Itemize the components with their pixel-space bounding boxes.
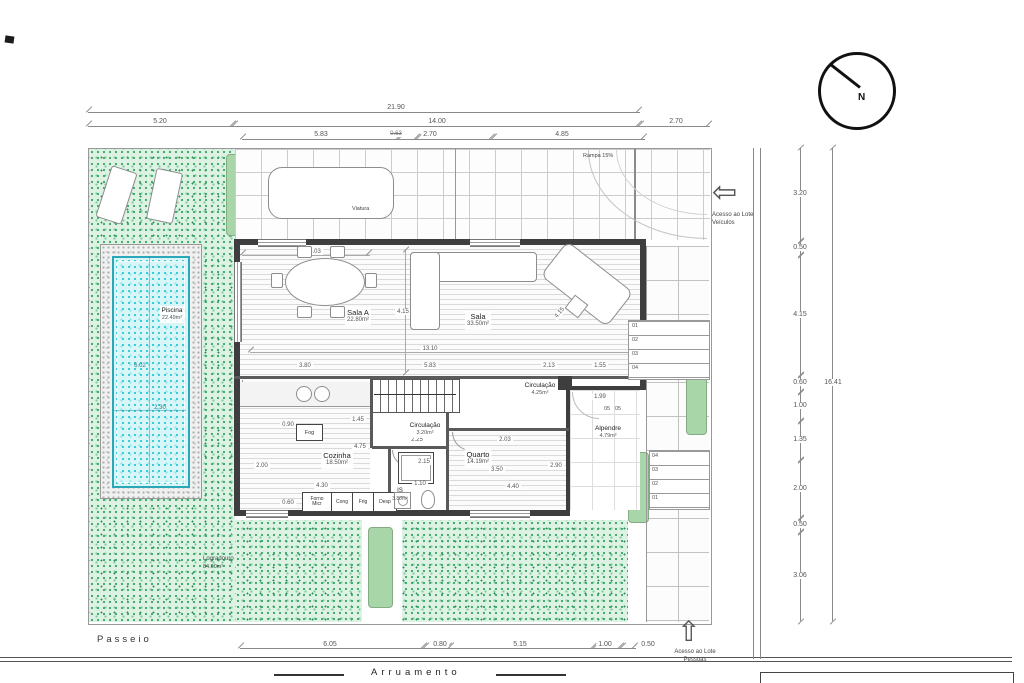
dim-r-050a: 0.50 — [791, 244, 809, 251]
dim-kitchen-090: 0.90 — [280, 422, 296, 428]
car-label: Viatura — [352, 206, 369, 213]
step-number: 01 — [652, 495, 658, 501]
room-name-cozinha: Cozinha — [323, 451, 351, 460]
car-outline — [268, 167, 394, 219]
dining-chair — [365, 273, 377, 288]
dim-line-b1 — [240, 648, 425, 649]
street-line — [0, 661, 1012, 662]
room-name-quarto: Quarto — [467, 450, 490, 459]
step-number: 04 — [652, 453, 658, 459]
pool-dim-length: 6.02 — [132, 363, 148, 369]
dim-line-b2 — [425, 648, 450, 649]
fridge-label: Frig — [359, 499, 368, 505]
window-top-sala — [470, 239, 520, 247]
street-line — [0, 657, 1012, 658]
compass-north-label: N — [858, 92, 865, 103]
dim-485: 4.85 — [553, 131, 571, 138]
dim-r-200: 2.00 — [791, 485, 809, 492]
dim-kitchen-475: 4.75 — [352, 444, 368, 450]
dim-line-270-top — [640, 126, 710, 127]
dim-line-485 — [493, 139, 645, 140]
logradouro-area: 84.00m² — [203, 564, 234, 571]
dim-shower: 2.15 — [416, 459, 432, 465]
window-kitchen — [246, 510, 288, 518]
access-people-label: Acesso ao Lote Pessoas — [664, 649, 726, 665]
dim-270b: 2.70 — [421, 131, 439, 138]
dim-r-060: 0.60 — [791, 379, 809, 386]
oven-box: Forno Micr — [302, 492, 332, 512]
ramp-label: Rampa 15% — [583, 153, 613, 160]
pool-axis-vertical — [149, 256, 150, 484]
room-label-piscina: Piscina 22.49m² — [160, 306, 185, 323]
room-area-sala-a: 22.80m² — [347, 317, 369, 325]
dim-r-135: 1.35 — [791, 436, 809, 443]
step-number: 01 — [632, 323, 638, 329]
partition-is-right — [446, 411, 449, 510]
room-name-circulacao-piso: Circulação — [410, 422, 441, 430]
dining-chair — [271, 273, 283, 288]
room-area-piscina: 22.49m² — [162, 315, 182, 322]
stove-label: Fog — [305, 430, 314, 436]
steps-lower — [649, 450, 710, 510]
dim-sala-a-h: 4.15 — [395, 309, 411, 315]
dim-line-583 — [242, 139, 400, 140]
window-quarto — [470, 510, 530, 518]
dim-270-top: 2.70 — [667, 118, 685, 125]
pool-axis-horizontal — [113, 410, 186, 411]
dim-b-100: 1.00 — [596, 641, 614, 648]
dim-seg-155: 1.55 — [592, 363, 608, 369]
dim-seg-380: 3.80 — [297, 363, 313, 369]
wall-pier — [558, 376, 572, 390]
dim-line-total-width — [88, 112, 640, 113]
wall-alpendre-top — [570, 386, 646, 390]
access-people-line2: Pessoas — [664, 657, 726, 665]
room-name-piscina: Piscina — [162, 307, 183, 315]
dim-b-050: 0.50 — [639, 641, 657, 648]
access-vehicles-line1: Acesso ao Lote — [712, 212, 753, 220]
access-people-arrow-icon: ⇧ — [677, 618, 700, 646]
step-number-landing: 05 — [604, 406, 610, 412]
sofa-chaise — [410, 252, 440, 330]
room-area-quarto: 14.19m² — [467, 459, 489, 467]
dining-chair — [330, 306, 345, 318]
dim-kitchen-060: 0.60 — [280, 500, 296, 506]
patio-edge-line — [646, 246, 647, 622]
dim-line-b4 — [595, 648, 622, 649]
dining-table — [285, 258, 365, 306]
step-number: 02 — [652, 481, 658, 487]
dim-line-living-total — [250, 352, 634, 353]
dim-r-415: 4.15 — [791, 311, 809, 318]
access-people-line1: Acesso ao Lote — [664, 649, 726, 657]
room-name-sala-a: Sala A — [347, 308, 369, 317]
step-number: 02 — [632, 337, 638, 343]
dim-quarto-440: 4.40 — [505, 484, 521, 490]
room-label-alpendre: Alpendre 4.79m² — [593, 424, 623, 441]
dining-chair — [297, 306, 312, 318]
wall-right-lower — [566, 390, 570, 516]
dim-520: 5.20 — [151, 118, 169, 125]
step-number: 03 — [652, 467, 658, 473]
dim-hall-b: 2.03 — [497, 437, 513, 443]
dim-kitchen-200: 2.00 — [254, 463, 270, 469]
access-vehicles-line2: Veículos — [712, 220, 753, 228]
window-left-pool — [234, 262, 242, 342]
room-label-is: IS 3.80m² — [390, 487, 410, 503]
room-area-cozinha: 18.50m² — [326, 460, 348, 468]
logradouro-name: Logradouro — [203, 556, 234, 564]
dim-is-w: 1.10 — [412, 481, 428, 487]
room-area-alpendre: 4.79m² — [599, 433, 616, 440]
street-dash — [274, 674, 344, 676]
room-label-sala-a: Sala A 22.80m² — [345, 307, 371, 326]
passeio-label: Passeio — [97, 634, 152, 645]
kitchen-sink — [296, 386, 312, 402]
dim-line-b5 — [622, 648, 636, 649]
microwave-label: Micr — [312, 502, 321, 507]
room-name-alpendre: Alpendre — [595, 425, 621, 433]
fridge-box: Frig — [352, 492, 374, 512]
dim-r-100: 1.00 — [791, 402, 809, 409]
freezer-label: Cong — [336, 499, 348, 505]
dining-chair — [297, 246, 312, 258]
dim-r-306: 3.06 — [791, 572, 809, 579]
dim-r-050b: 0.50 — [791, 521, 809, 528]
dim-r-320: 3.20 — [791, 190, 809, 197]
room-area-circulacao-sup: 4.25m² — [531, 390, 548, 397]
planter-garden — [368, 527, 393, 608]
sidewalk-line — [760, 148, 761, 659]
room-label-quarto: Quarto 14.19m² — [465, 449, 492, 468]
dining-chair — [330, 246, 345, 258]
partition-is-top — [372, 446, 449, 449]
room-name-is: IS — [397, 488, 403, 496]
room-area-sala: 33.50m² — [467, 321, 489, 329]
room-label-sala: Sala 33.50m² — [465, 311, 491, 330]
dim-b-080: 0.80 — [431, 641, 449, 648]
stove-box: Fog — [296, 424, 323, 441]
toilet — [421, 490, 435, 509]
steps-upper — [628, 320, 710, 380]
partition-quarto-top — [449, 428, 569, 431]
dim-seg-213: 2.13 — [541, 363, 557, 369]
dim-kitchen-430: 4.30 — [314, 483, 330, 489]
dim-quarto-350: 3.50 — [489, 467, 505, 473]
dim-line-1400 — [234, 126, 640, 127]
dim-583: 5.83 — [312, 131, 330, 138]
dim-063: 0.63 — [388, 131, 404, 137]
dim-b-515: 5.15 — [511, 641, 529, 648]
dim-line-b3 — [450, 648, 595, 649]
street-dash — [496, 674, 566, 676]
dim-b-605: 6.05 — [321, 641, 339, 648]
dim-1400: 14.00 — [426, 118, 448, 125]
shower — [398, 452, 434, 484]
room-area-is: 3.80m² — [392, 496, 408, 502]
room-name-sala: Sala — [470, 312, 485, 321]
driveway-joint-line — [455, 149, 456, 240]
logradouro-label: Logradouro 84.00m² — [203, 556, 234, 571]
pool-inner-rim — [117, 261, 185, 483]
pantry-label: Desp — [379, 499, 391, 505]
dim-line-270b — [418, 139, 493, 140]
step-number: 04 — [632, 365, 638, 371]
planter-right-upper — [686, 372, 707, 435]
stairs — [372, 379, 460, 413]
room-area-circulacao-piso: 3.20m² — [416, 430, 433, 437]
dim-line-520 — [88, 126, 234, 127]
grass-bottom — [235, 520, 628, 622]
scan-mark — [5, 35, 15, 43]
dim-quarto-290: 2.90 — [548, 463, 564, 469]
room-label-circulacao-sup: Circulação 4.25m² — [523, 381, 558, 398]
access-vehicles-label: Acesso ao Lote Veículos — [712, 212, 753, 228]
room-label-cozinha: Cozinha 18.50m² — [321, 450, 353, 469]
room-label-circulacao-piso: Circulação 3.20m² — [408, 421, 443, 438]
access-vehicles-arrow-icon: ⇦ — [712, 178, 737, 208]
pool-water — [112, 256, 190, 488]
dim-living-total: 13.10 — [420, 346, 439, 352]
kitchen-sink — [314, 386, 330, 402]
dim-seg-583: 5.83 — [422, 363, 438, 369]
title-block-edge — [760, 672, 1014, 683]
step-number: 03 — [632, 351, 638, 357]
room-name-circulacao-sup: Circulação — [525, 382, 556, 390]
step-number-landing: 05 — [615, 406, 621, 412]
site-plan-drawing: 21.90 5.20 14.00 2.70 5.83 0.63 2.70 4.8… — [0, 0, 1024, 683]
freezer-box: Cong — [331, 492, 353, 512]
dim-total-width: 21.90 — [385, 104, 407, 111]
stairs-walkline — [374, 394, 456, 395]
arruamento-label: Arruamento — [371, 667, 461, 678]
dim-kitchen-145: 1.45 — [350, 417, 366, 423]
dim-r-total: 16.41 — [822, 379, 844, 386]
